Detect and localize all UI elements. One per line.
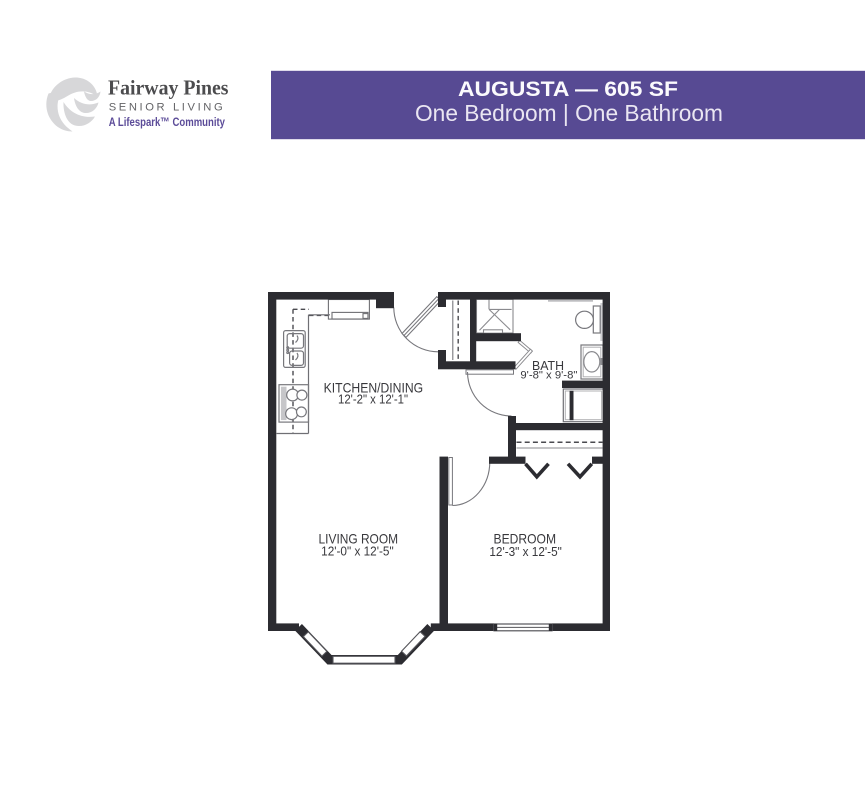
svg-text:Fairway Pines: Fairway Pines — [108, 76, 229, 100]
svg-text:9'-8" x 9'-8": 9'-8" x 9'-8" — [520, 369, 577, 381]
svg-text:12'-0" x 12'-5": 12'-0" x 12'-5" — [321, 544, 394, 558]
svg-text:A Lifespark™ Community: A Lifespark™ Community — [109, 115, 225, 129]
svg-text:SENIOR LIVING: SENIOR LIVING — [109, 102, 223, 114]
svg-text:One Bedroom | One Bathroom: One Bedroom | One Bathroom — [415, 100, 723, 126]
svg-text:12'-2" x 12'-1": 12'-2" x 12'-1" — [338, 392, 408, 406]
svg-text:AUGUSTA — 605 SF: AUGUSTA — 605 SF — [458, 77, 678, 101]
svg-text:12'-3" x 12'-5": 12'-3" x 12'-5" — [489, 545, 562, 559]
